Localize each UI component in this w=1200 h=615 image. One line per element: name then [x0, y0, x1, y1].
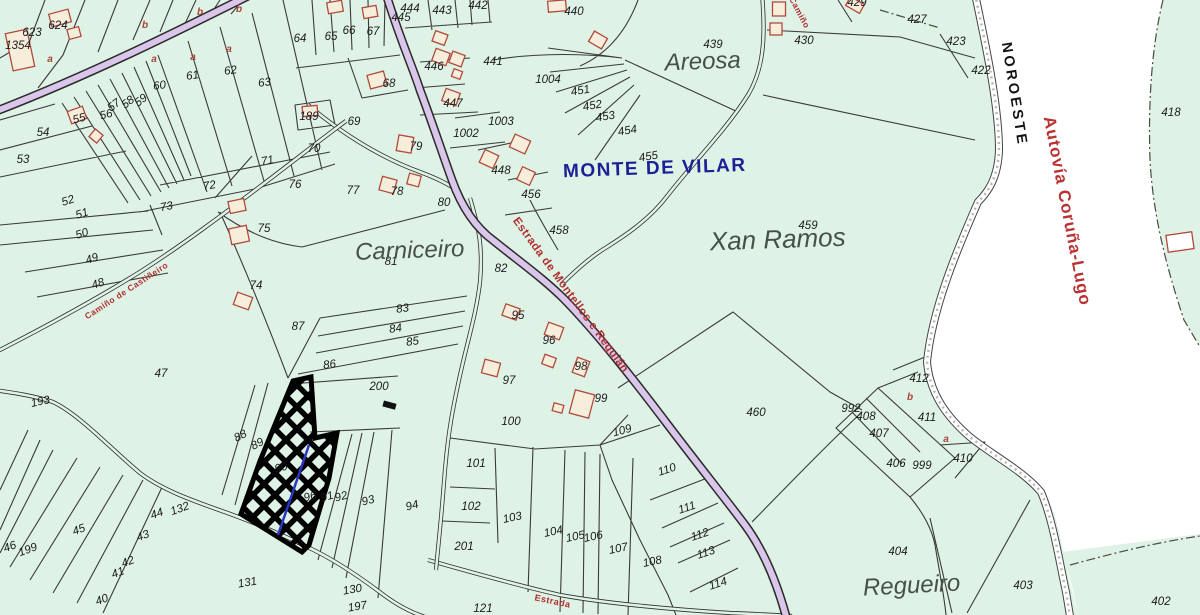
- subdivision-letter: a: [226, 44, 232, 55]
- building-footprint: [229, 225, 250, 244]
- subdivision-letter: a: [47, 54, 53, 65]
- parcel-number-85: 85: [405, 335, 420, 349]
- parcel-number-66: 66: [343, 25, 356, 37]
- parcel-number-62: 62: [223, 64, 238, 78]
- parcel-number-448: 448: [491, 165, 511, 177]
- parcel-number-101: 101: [466, 458, 485, 470]
- parcel-number-80: 80: [438, 197, 451, 209]
- place-label: Carniceiro: [355, 235, 465, 266]
- parcel-number-402: 402: [1151, 596, 1171, 608]
- building-footprint: [327, 0, 344, 13]
- parcel-number-67: 67: [367, 26, 380, 38]
- parcel-number-410: 410: [953, 453, 973, 465]
- parcel-number-79: 79: [410, 141, 423, 153]
- parcel-number-77: 77: [347, 185, 360, 197]
- parcel-number-446: 446: [424, 61, 444, 73]
- place-label: Xan Ramos: [708, 222, 846, 257]
- parcel-number-1003: 1003: [488, 116, 514, 128]
- parcel-number-1002: 1002: [453, 128, 479, 140]
- parcel-number-98: 98: [575, 361, 588, 373]
- parcel-number-64: 64: [294, 33, 307, 45]
- building-footprint: [362, 5, 378, 18]
- subdivision-letter: b: [236, 4, 242, 15]
- subdivision-letter: a: [151, 54, 157, 65]
- parcel-number-68: 68: [383, 78, 396, 90]
- parcel-number-440: 440: [564, 6, 584, 18]
- parcel-number-1004: 1004: [535, 74, 561, 86]
- parcel-number-82: 82: [495, 263, 508, 275]
- parcel-number-456: 456: [521, 189, 541, 201]
- parcel-number-95: 95: [512, 310, 525, 322]
- parcel-number-76: 76: [289, 179, 302, 191]
- parcel-number-61: 61: [185, 69, 199, 83]
- parcel-number-408: 408: [856, 411, 876, 423]
- parcel-number-70: 70: [308, 143, 321, 155]
- building-footprint: [1166, 232, 1194, 252]
- building-footprint: [773, 2, 786, 16]
- building-footprint: [770, 23, 782, 35]
- cadastral-map[interactable]: 6236241354535455565758596061626364656667…: [0, 0, 1200, 615]
- parcel-number-47: 47: [155, 368, 168, 380]
- parcel-number-412: 412: [909, 373, 929, 385]
- place-label: Regueiro: [862, 569, 961, 601]
- parcel-number-429: 429: [847, 0, 867, 9]
- parcel-number-418: 418: [1161, 107, 1181, 119]
- parcel-number-63: 63: [257, 76, 272, 90]
- parcel-number-71: 71: [260, 154, 275, 168]
- parcel-number-445: 445: [391, 12, 411, 24]
- parcel-number-84: 84: [388, 322, 402, 336]
- parcel-number-427: 427: [907, 14, 927, 26]
- parcel-number-87: 87: [292, 321, 305, 333]
- parcel-number-404: 404: [888, 546, 907, 558]
- parcel-number-403: 403: [1013, 580, 1033, 592]
- parcel-number-430: 430: [794, 35, 814, 47]
- parcel-number-1354: 1354: [5, 40, 31, 52]
- subdivision-letter: b: [907, 392, 913, 403]
- parcel-number-201: 201: [453, 541, 473, 553]
- subdivision-letter: b: [197, 7, 203, 18]
- parcel-number-86: 86: [322, 358, 337, 372]
- parcel-number-60: 60: [152, 79, 167, 93]
- parcel-number-999: 999: [912, 460, 932, 472]
- parcel-number-74: 74: [250, 280, 263, 292]
- parcel-number-97: 97: [503, 375, 516, 387]
- parcel-number-407: 407: [869, 428, 889, 440]
- parcel-number-200: 200: [368, 381, 389, 393]
- parcel-number-121: 121: [473, 603, 492, 615]
- parcel-number-69: 69: [348, 116, 361, 128]
- parcel-number-100: 100: [501, 416, 521, 428]
- parcel-number-65: 65: [325, 31, 338, 43]
- building-footprint: [228, 198, 246, 213]
- building-footprint: [552, 403, 564, 413]
- parcel-number-460: 460: [746, 407, 766, 419]
- parcel-number-624: 624: [48, 20, 67, 32]
- parcel-number-442: 442: [468, 0, 488, 12]
- parcel-number-189: 189: [299, 111, 319, 123]
- cadastral-map-viewport[interactable]: 6236241354535455565758596061626364656667…: [0, 0, 1200, 615]
- parcel-number-83: 83: [395, 302, 410, 316]
- parcel-number-53: 53: [17, 154, 30, 166]
- subdivision-letter: a: [190, 52, 196, 63]
- building-footprint: [407, 173, 421, 187]
- parcel-number-411: 411: [918, 412, 936, 424]
- subdivision-letter: a: [943, 434, 949, 445]
- parcel-number-406: 406: [886, 458, 906, 470]
- parcel-number-78: 78: [391, 186, 404, 198]
- place-label: Areosa: [662, 47, 741, 77]
- parcel-number-102: 102: [461, 501, 481, 513]
- parcel-number-458: 458: [549, 225, 569, 237]
- parcel-number-99: 99: [595, 393, 608, 405]
- parcel-number-422: 422: [971, 65, 991, 77]
- parcel-number-54: 54: [37, 127, 50, 139]
- parcel-number-75: 75: [258, 223, 271, 235]
- parcel-number-441: 441: [483, 56, 502, 68]
- parcel-number-447: 447: [443, 98, 463, 110]
- parcel-number-443: 443: [432, 5, 452, 17]
- parcel-number-96: 96: [543, 335, 556, 347]
- parcel-number-423: 423: [946, 36, 966, 48]
- building-footprint: [67, 27, 81, 40]
- subdivision-letter: b: [142, 20, 148, 31]
- parcel-number-623: 623: [22, 27, 42, 39]
